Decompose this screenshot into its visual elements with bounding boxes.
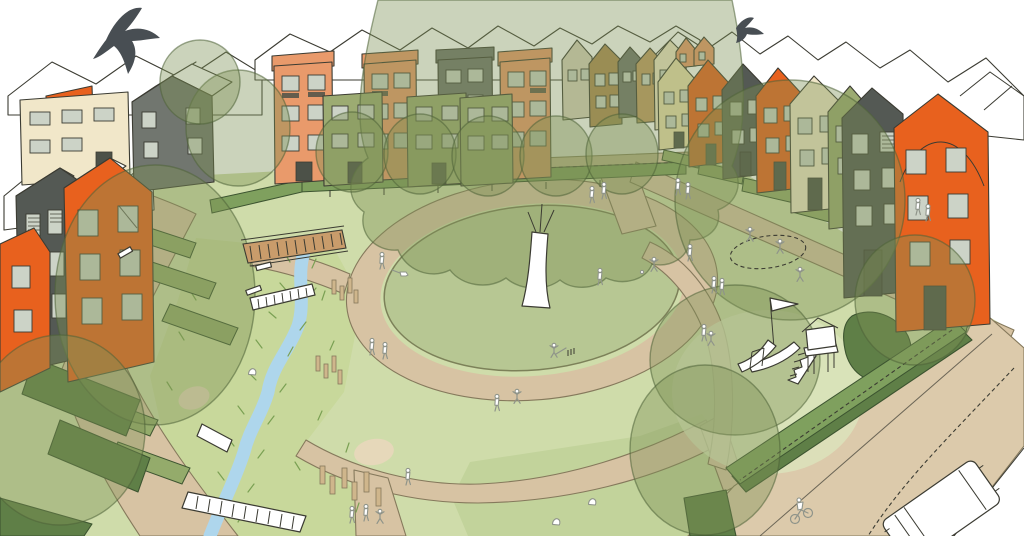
tree-canopy xyxy=(160,40,240,124)
sketch-scene xyxy=(0,0,1024,536)
tree-canopy xyxy=(630,365,780,535)
figure-sitting xyxy=(553,519,560,525)
figure-sitting xyxy=(249,369,256,375)
figure-sitting xyxy=(589,499,596,505)
street-tree-canopies xyxy=(316,112,658,196)
illustration-canvas xyxy=(0,0,1024,536)
tree-canopy xyxy=(855,235,975,365)
ball xyxy=(640,270,643,273)
